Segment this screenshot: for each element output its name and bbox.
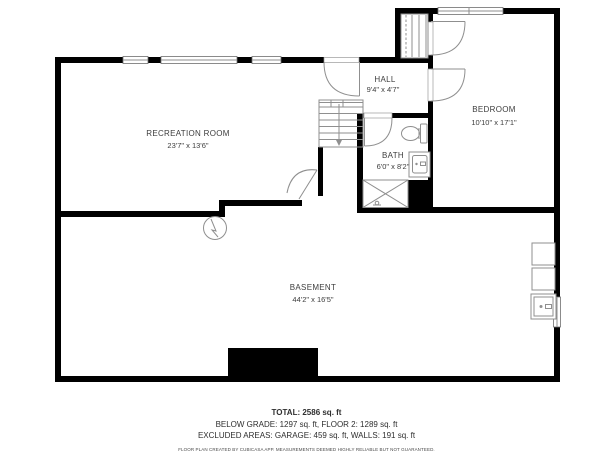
below-grade-text: BELOW GRADE: 1297 sq. ft, FLOOR 2: 1289 …	[0, 420, 613, 429]
excluded-areas-text: EXCLUDED AREAS: GARAGE: 459 sq. ft, WALL…	[0, 431, 613, 440]
room-dims-bedroom: 10'10" x 17'1"	[471, 118, 517, 127]
toilet-icon	[402, 124, 428, 143]
total-area-text: TOTAL: 2586 sq. ft	[0, 408, 613, 417]
floor-plan: RECREATION ROOM 23'7" x 13'6" HALL 9'4" …	[0, 0, 613, 400]
shower-icon	[363, 180, 408, 208]
stairs-down-arrow-icon	[336, 104, 343, 146]
room-dims-hall: 9'4" x 4'7"	[367, 85, 400, 94]
disclaimer-text: FLOOR PLAN CREATED BY CUBICASA APP. MEAS…	[0, 447, 613, 452]
hall-entry-door-icon	[324, 58, 360, 97]
window-icon	[252, 57, 281, 64]
room-label-bath: BATH	[382, 151, 404, 160]
room-label-bedroom: BEDROOM	[472, 105, 515, 114]
laundry-appliance-icons	[531, 243, 556, 319]
exterior-walls	[55, 8, 560, 382]
stairs-icon	[319, 100, 363, 147]
interior-walls	[55, 14, 560, 217]
room-dims-basement: 44'2" x 16'5"	[292, 295, 333, 304]
sink-vanity-icon	[409, 152, 430, 177]
basement-door-icon	[287, 170, 317, 199]
closet-interior	[401, 14, 428, 58]
fireplace-block	[228, 348, 318, 377]
bedroom-door-icon	[428, 69, 465, 101]
room-label-hall: HALL	[374, 75, 395, 84]
bath-door-icon	[364, 113, 392, 146]
doors	[287, 22, 465, 200]
window-icon	[161, 57, 237, 64]
room-label-basement: BASEMENT	[290, 283, 336, 292]
sump-pump-icon	[204, 217, 227, 240]
room-dims-bath: 6'0" x 8'2"	[377, 162, 410, 171]
room-dims-recreation: 23'7" x 13'6"	[167, 141, 208, 150]
window-icon	[123, 57, 148, 64]
windows	[123, 8, 561, 328]
floor-plan-drawing: RECREATION ROOM 23'7" x 13'6" HALL 9'4" …	[0, 0, 613, 400]
closet-door-icon	[428, 22, 465, 56]
room-label-recreation: RECREATION ROOM	[146, 129, 230, 138]
window-icon	[438, 8, 503, 15]
